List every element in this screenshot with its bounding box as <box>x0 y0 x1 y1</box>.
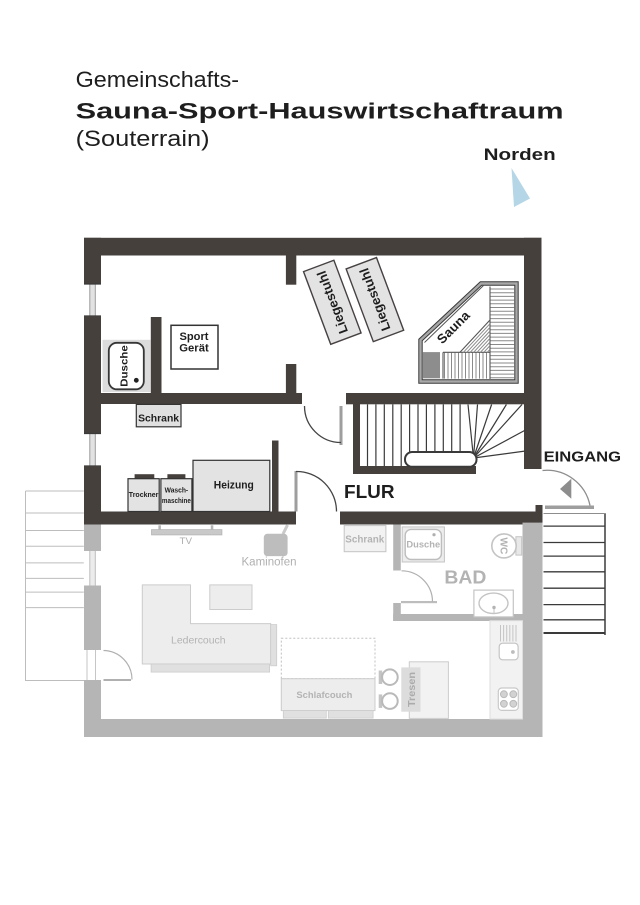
svg-text:FLUR: FLUR <box>344 482 395 502</box>
svg-text:Sport: Sport <box>180 331 209 343</box>
svg-text:(Souterrain): (Souterrain) <box>76 126 210 151</box>
svg-text:EINGANG: EINGANG <box>544 449 622 465</box>
svg-text:Norden: Norden <box>484 145 556 164</box>
svg-text:Tresen: Tresen <box>407 672 418 707</box>
svg-text:Heizung: Heizung <box>214 480 254 492</box>
svg-text:Sauna-Sport-Hauswirtschaftraum: Sauna-Sport-Hauswirtschaftraum <box>76 99 564 124</box>
svg-text:Dusche: Dusche <box>119 345 131 387</box>
svg-text:BAD: BAD <box>444 568 486 588</box>
svg-text:Schlafcouch: Schlafcouch <box>296 690 352 701</box>
svg-text:Schrank: Schrank <box>138 413 179 424</box>
svg-text:maschine: maschine <box>162 498 191 505</box>
svg-text:Gemeinschafts-: Gemeinschafts- <box>76 67 240 92</box>
svg-text:WC: WC <box>498 537 509 554</box>
svg-text:Dusche: Dusche <box>406 539 440 549</box>
svg-text:Schrank: Schrank <box>345 534 385 545</box>
svg-text:Trockner: Trockner <box>129 492 159 499</box>
svg-text:Kaminofen: Kaminofen <box>242 557 297 569</box>
svg-text:TV: TV <box>180 536 193 547</box>
svg-text:Ledercouch: Ledercouch <box>171 635 226 647</box>
svg-text:Wasch-: Wasch- <box>165 488 189 495</box>
svg-text:Gerät: Gerät <box>179 343 209 355</box>
